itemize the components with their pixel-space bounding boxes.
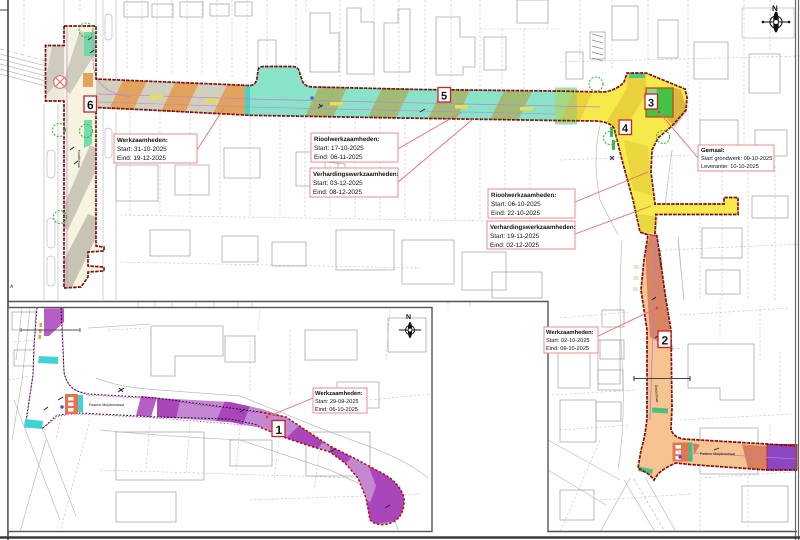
svg-text:1: 1 xyxy=(276,423,283,437)
svg-text:4: 4 xyxy=(622,123,629,135)
svg-text:Werkzaamheden:: Werkzaamheden: xyxy=(117,137,168,144)
svg-text:Eind: 02-12-2025: Eind: 02-12-2025 xyxy=(490,242,539,249)
svg-text:Start: 03-12-2025: Start: 03-12-2025 xyxy=(313,180,363,187)
svg-text:Pastoor Meijdenstraat: Pastoor Meijdenstraat xyxy=(89,403,124,407)
svg-text:Eind: 19-12-2025: Eind: 19-12-2025 xyxy=(117,155,166,162)
svg-text:Werkzaamheden:: Werkzaamheden: xyxy=(315,390,363,397)
svg-text:Start: 06-10-2025: Start: 06-10-2025 xyxy=(491,201,541,208)
svg-text:Rioolwerkzaamheden:: Rioolwerkzaamheden: xyxy=(314,136,379,143)
svg-text:Werkzaamheden:: Werkzaamheden: xyxy=(546,329,594,336)
svg-text:Start grondwerk: 09-10-2025: Start grondwerk: 09-10-2025 xyxy=(701,155,772,162)
svg-text:Eind: 08-12-2025: Eind: 08-12-2025 xyxy=(313,189,362,196)
svg-text:Gemaal:: Gemaal: xyxy=(701,147,725,154)
svg-text:N: N xyxy=(406,314,411,321)
svg-text:Eind: 06-11-2025: Eind: 06-11-2025 xyxy=(314,154,363,161)
svg-text:Start: 02-10-2025: Start: 02-10-2025 xyxy=(546,338,590,344)
svg-text:Leverantie: 10-10-2025: Leverantie: 10-10-2025 xyxy=(701,163,759,170)
svg-text:5: 5 xyxy=(441,91,447,103)
svg-text:3: 3 xyxy=(648,98,654,110)
svg-text:Rioolwerkzaamheden:: Rioolwerkzaamheden: xyxy=(491,192,556,199)
svg-text:Eind: 09-10-2025: Eind: 09-10-2025 xyxy=(546,345,589,352)
svg-text:Eind: 22-10-2025: Eind: 22-10-2025 xyxy=(491,210,540,217)
svg-text:Start: 17-10-2025: Start: 17-10-2025 xyxy=(314,145,364,152)
svg-text:Pastoor Meijdenstraat: Pastoor Meijdenstraat xyxy=(700,452,735,456)
svg-text:Start: 31-10-2025: Start: 31-10-2025 xyxy=(117,146,167,153)
svg-text:Verhardingswerkzaamheden:: Verhardingswerkzaamheden: xyxy=(490,224,576,231)
svg-text:N: N xyxy=(772,4,778,13)
svg-text:6: 6 xyxy=(87,98,94,112)
svg-text:2: 2 xyxy=(662,334,669,348)
svg-text:Hoofdstraat: Hoofdstraat xyxy=(77,150,81,168)
svg-text:Start: 19-11-2025: Start: 19-11-2025 xyxy=(490,233,540,240)
svg-text:Start: 29-09-2025: Start: 29-09-2025 xyxy=(315,399,359,405)
svg-text:Verhardingswerkzaamheden:: Verhardingswerkzaamheden: xyxy=(313,171,399,178)
svg-text:Eind: 06-10-2025: Eind: 06-10-2025 xyxy=(315,406,358,413)
